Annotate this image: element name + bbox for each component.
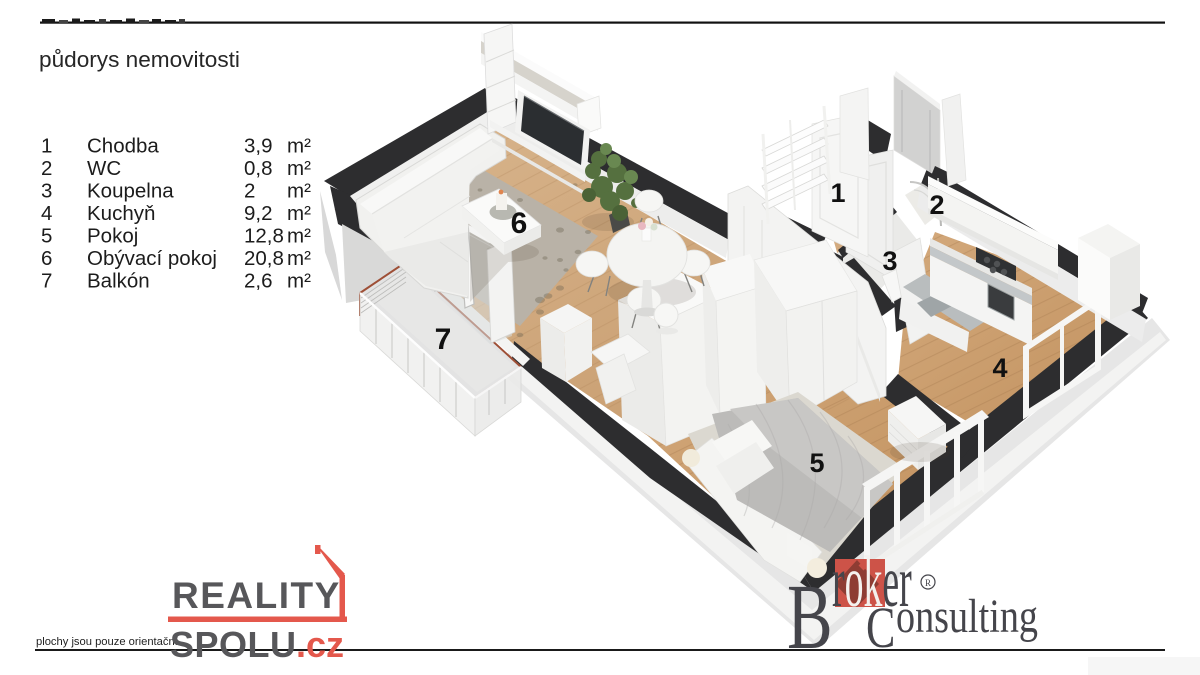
- svg-text:Kuchyň: Kuchyň: [87, 202, 155, 225]
- svg-text:2,6: 2,6: [244, 270, 273, 293]
- svg-text:půdorys nemovitosti: půdorys nemovitosti: [39, 47, 240, 72]
- svg-text:SPOLU: SPOLU: [170, 624, 297, 665]
- svg-text:12,8: 12,8: [244, 225, 284, 248]
- svg-text:2: 2: [244, 180, 255, 203]
- svg-text:20,8: 20,8: [244, 247, 284, 270]
- svg-text:B: B: [787, 565, 833, 669]
- svg-text:R: R: [925, 578, 931, 588]
- svg-text:6: 6: [511, 207, 528, 240]
- svg-text:7: 7: [435, 323, 452, 356]
- svg-text:2: 2: [929, 190, 944, 220]
- svg-text:3: 3: [882, 246, 897, 276]
- svg-text:m²: m²: [287, 270, 311, 293]
- svg-text:m²: m²: [287, 247, 311, 270]
- svg-text:0,8: 0,8: [244, 157, 273, 180]
- svg-text:5: 5: [809, 448, 824, 478]
- svg-text:.cz: .cz: [296, 624, 344, 665]
- svg-text:m²: m²: [287, 180, 311, 203]
- svg-text:WC: WC: [87, 157, 121, 180]
- svg-text:plochy jsou pouze orientační: plochy jsou pouze orientační: [36, 636, 179, 648]
- svg-text:Obývací pokoj: Obývací pokoj: [87, 247, 217, 270]
- svg-text:m²: m²: [287, 157, 311, 180]
- svg-text:Balkón: Balkón: [87, 270, 150, 293]
- svg-text:4: 4: [41, 202, 52, 225]
- svg-text:4: 4: [992, 353, 1007, 383]
- svg-text:7: 7: [41, 270, 52, 293]
- svg-text:onsulting: onsulting: [896, 591, 1038, 643]
- svg-text:C: C: [866, 596, 895, 660]
- svg-text:m²: m²: [287, 225, 311, 248]
- svg-text:9,2: 9,2: [244, 202, 273, 225]
- svg-text:1: 1: [41, 135, 52, 158]
- svg-text:3: 3: [41, 180, 52, 203]
- svg-text:m²: m²: [287, 135, 311, 158]
- svg-text:Koupelna: Koupelna: [87, 180, 174, 203]
- svg-text:1: 1: [830, 178, 845, 208]
- svg-text:3,9: 3,9: [244, 135, 273, 158]
- svg-text:m²: m²: [287, 202, 311, 225]
- svg-text:6: 6: [41, 247, 52, 270]
- svg-text:Chodba: Chodba: [87, 135, 159, 158]
- svg-text:Pokoj: Pokoj: [87, 225, 138, 248]
- svg-text:REALITY: REALITY: [172, 575, 341, 616]
- svg-text:5: 5: [41, 225, 52, 248]
- svg-text:2: 2: [41, 157, 52, 180]
